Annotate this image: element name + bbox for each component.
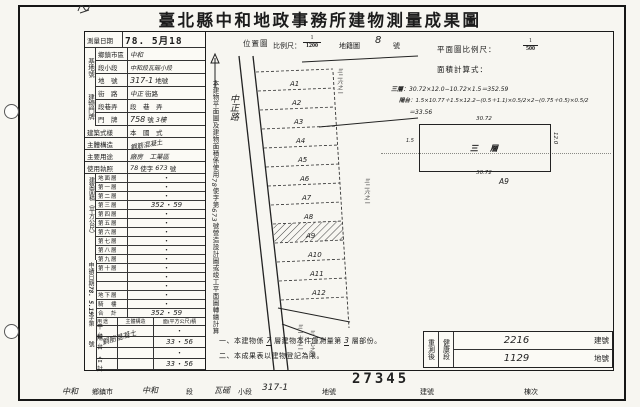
floor-area-value: ・: [128, 211, 205, 217]
floor-area-row: 合 計352・59: [96, 309, 205, 318]
parcel-label: A10: [307, 251, 322, 259]
floor-area-value: ・: [128, 283, 205, 289]
resurvey-building-row: 2216 建號: [454, 332, 612, 350]
floor-area-row: ・: [96, 282, 205, 291]
structure-row: 主體構造 鋼筋混凝土: [85, 138, 205, 150]
parcel-label: A7: [301, 194, 312, 202]
large-parcel-top: [302, 56, 418, 62]
plan-dim-bottom: 30.72: [419, 170, 549, 176]
footer-city-handwritten: 中和: [62, 386, 78, 397]
road-edge-left: [239, 56, 274, 370]
floor-area-row: 第七層・: [96, 237, 205, 246]
parcel-label: A11: [309, 270, 324, 278]
preprinted-decimal-dot: ・: [163, 265, 170, 271]
parcel-boundary-right: [333, 72, 349, 328]
annex-area: 33・56: [154, 337, 205, 347]
floor-area-value: ・: [128, 247, 205, 253]
annex-area-frac: 56: [184, 338, 193, 346]
floor-area-row: ・: [96, 273, 205, 282]
site-row-label: 段小段: [96, 61, 128, 73]
footer-lot-number-handwritten: 317-1: [262, 383, 288, 393]
floor-label: 第九層: [96, 255, 128, 263]
floor-area-row: 第四層・: [96, 210, 205, 219]
area-value-int: 352: [151, 309, 164, 317]
balcony-formula-line: 陽台：1.5×10.77＋1.5×12.2−(0.5＋1.1)×0.5/2×2−…: [399, 96, 589, 104]
preprinted-decimal-dot: ・: [163, 301, 170, 307]
usage-value: 廠房 工業區: [130, 151, 169, 161]
floor-area-row: 第八層・: [96, 246, 205, 255]
preprinted-decimal-dot: ・: [163, 229, 170, 235]
structure-value: 鋼筋混凝土: [129, 136, 163, 151]
preprinted-decimal-dot: ・: [163, 184, 170, 190]
resurvey-building-suffix: 建號: [579, 335, 612, 346]
door-row-value: 中正: [130, 88, 143, 98]
door-row: 段巷弄 段 巷 弄: [96, 100, 205, 113]
road-name-label: 中正路: [227, 94, 239, 121]
floor-area-row: 地下層・: [96, 291, 205, 300]
floor-label: 第五層: [96, 219, 128, 227]
survey-date-row: 測量日期 78. 5月18: [85, 32, 205, 48]
floor-area-row: 第二層・: [96, 192, 205, 201]
annex-area: ・: [154, 348, 205, 358]
annex-area-int: 33: [166, 360, 175, 368]
preprinted-decimal-dot: ・: [163, 220, 170, 226]
plan-dim-right: 12.0: [552, 132, 558, 144]
door-row-label: 段巷弄: [96, 100, 128, 112]
floor-label: 地下層: [96, 291, 128, 299]
note-number: 二、: [219, 352, 234, 360]
floor-area-row: 第一層・: [96, 183, 205, 192]
floor-label: 第四層: [96, 210, 128, 218]
floor-label: [96, 273, 128, 281]
preprinted-decimal-dot: ・: [163, 175, 170, 181]
site-row: 段小段 中和段瓦磘小段: [96, 61, 205, 74]
plan-scale-numerator: 1: [529, 38, 532, 45]
footer-lot-label: 地號: [322, 387, 336, 397]
floor-label: 第七層: [96, 237, 128, 245]
note-hand-year: 78: [210, 178, 218, 187]
area-value-int: 352: [151, 201, 164, 209]
site-row-value: 中和: [130, 49, 143, 59]
note-text: 本建物平面圖及建物面積係使用: [211, 80, 218, 178]
floor-area-value: ・: [128, 274, 205, 280]
floor-label: 騎 樓: [96, 300, 128, 308]
parcel-separators: [256, 69, 347, 300]
note-text: 本建物係: [234, 337, 264, 345]
usage-label: 主要用途: [85, 150, 128, 161]
parcel-number-annotation: 三二六之一: [361, 178, 370, 206]
license-word: 使字: [140, 163, 153, 173]
large-parcel-divider: [319, 118, 418, 127]
floor-area-section: 建築面積（平方公尺） 地面層・第一層・第二層・第三層352・59第四層・第五層・…: [85, 174, 205, 318]
site-row-value: 中和段瓦磘小段: [130, 63, 172, 72]
north-arrow-icon: [208, 52, 222, 90]
plan-scale-fraction: 1 500: [523, 38, 538, 53]
annex-structure: [118, 348, 154, 358]
floor-area-value: ・: [128, 256, 205, 262]
door-floor-value: 3樓: [156, 114, 167, 124]
note-text: 使字第: [211, 187, 218, 208]
style-row: 建築式樣 本 國 式: [85, 126, 205, 138]
parcel-label: A12: [311, 289, 326, 297]
south-boundary: [278, 308, 350, 322]
footer-section-handwritten: 中和: [142, 385, 158, 396]
style-value: 本 國 式: [128, 126, 205, 137]
resurvey-lot-number: 1129: [454, 353, 579, 364]
door-row-suffix: 段 巷 弄: [130, 101, 163, 111]
floor-area-row: 地面層・: [96, 174, 205, 183]
balcony-formula-label: 陽台: [399, 98, 410, 104]
door-row-suffix: 街路: [145, 88, 158, 98]
footer-city-label: 鄉鎮市: [92, 387, 113, 397]
note-total-floors: 7: [266, 336, 272, 346]
floor-formula-label: 三層: [391, 86, 403, 93]
preprinted-decimal-dot: ・: [163, 256, 170, 262]
application-date-strip: 申請日期78. 5.19字第號: [85, 260, 97, 370]
door-number-value: 758: [130, 115, 145, 124]
floor-area-value: 352・59: [128, 309, 205, 317]
resurvey-section-name: 健康段: [439, 332, 454, 367]
site-section: 基地號 鄉鎮市區 中和 段小段 中和段瓦磘小段 地 號 317-1地號: [85, 48, 205, 87]
parcel-label: A8: [303, 213, 314, 221]
floor-label: 第三層: [96, 201, 128, 209]
preprinted-decimal-dot: ・: [163, 292, 170, 298]
floor-plan-label: 三 層: [470, 143, 500, 154]
resurvey-box: 重測後 健康段 2216 建號 1129 地號: [423, 331, 613, 368]
parcel-label: A2: [291, 99, 302, 107]
annex-area-int: 33: [166, 338, 175, 346]
preprinted-decimal-dot: ・: [165, 202, 172, 208]
floor-label: 第一層: [96, 183, 128, 191]
application-number-label: 字第: [87, 315, 93, 327]
punch-hole-top: [4, 104, 19, 119]
floor-area-rows: 地面層・第一層・第二層・第三層352・59第四層・第五層・第六層・第七層・第八層…: [96, 174, 205, 318]
license-year: 78: [130, 164, 138, 172]
preprinted-decimal-dot: ・: [176, 328, 183, 334]
scanned-survey-document: 臺北縣中和地政事務所建物測量成果圖 測量日期 78. 5月18 基地號 鄉鎮市區…: [0, 0, 640, 407]
preprinted-decimal-dot: ・: [176, 350, 183, 356]
plan-dim-top: 30.72: [419, 116, 549, 122]
resurvey-label: 重測後: [424, 332, 439, 367]
site-section-label: 基地號: [85, 48, 96, 87]
license-row: 使用執照 78使字673號: [85, 162, 205, 174]
preprinted-decimal-dot: ・: [163, 274, 170, 280]
parcel-number-annotation: 三一七之一: [294, 324, 303, 352]
floor-formula: 30.72×12.0−10.72×1.5＝352.59: [409, 86, 508, 93]
page-title: 臺北縣中和地政事務所建物測量成果圖: [0, 7, 640, 31]
parcel-label: A9: [305, 232, 316, 240]
area-value-frac: 59: [173, 201, 182, 209]
site-row-value: 317-1: [130, 76, 153, 85]
punch-hole-bottom: [4, 324, 19, 339]
preprinted-decimal-dot: ・: [176, 361, 183, 367]
floor-label: 第八層: [96, 246, 128, 254]
area-value-frac: 59: [173, 309, 182, 317]
floor-formula-line: 三層：30.72×12.0−10.72×1.5＝352.59: [391, 84, 508, 93]
floor-label: 第六層: [96, 228, 128, 236]
floor-area-row: 第十層・: [96, 264, 205, 273]
handwritten-mark: [76, 0, 94, 15]
plan-parcel-ref: A9: [499, 177, 509, 186]
floor-label: 第二層: [96, 192, 128, 200]
license-number: 673: [155, 164, 167, 172]
location-map: A1A2A3A4A5A6A7A8A9A10A11A12: [222, 32, 422, 370]
floor-area-value: ・: [128, 175, 205, 181]
note-measured-floor: 3: [344, 336, 350, 346]
parcel-label: A3: [293, 118, 303, 126]
site-row: 地 號 317-1地號: [96, 74, 205, 87]
survey-form-box: 測量日期 78. 5月18 基地號 鄉鎮市區 中和 段小段 中和段瓦磘小段 地 …: [84, 31, 614, 371]
plan-dim-left: 1.5: [406, 138, 414, 144]
parcel-label: A6: [299, 175, 310, 183]
balcony-formula-result: ＝33.56: [409, 107, 432, 116]
footer-unit-label: 棟次: [524, 387, 538, 397]
preprinted-decimal-dot: ・: [176, 339, 183, 345]
application-number-suffix: 號: [87, 341, 93, 347]
license-label: 使用執照: [85, 162, 128, 173]
door-row-suffix: 號: [147, 114, 154, 124]
parcel-label: A4: [295, 137, 305, 145]
floor-area-value: ・: [128, 193, 205, 199]
survey-date-label: 測量日期: [85, 32, 123, 47]
survey-date-stamp: 78. 5月18: [123, 32, 205, 47]
floor-label: [96, 282, 128, 290]
annex-area-frac: 56: [184, 360, 193, 368]
parcel-number-annotation: 三一七之二: [306, 330, 315, 358]
floor-label: 第十層: [96, 264, 128, 272]
floor-area-value: ・: [128, 229, 205, 235]
site-row-label: 鄉鎮市區: [96, 48, 128, 60]
application-date-label: 申請日期: [87, 262, 93, 286]
note-hand-number: 673: [210, 208, 218, 222]
building-info-table: 測量日期 78. 5月18 基地號 鄉鎮市區 中和 段小段 中和段瓦磘小段 地 …: [85, 32, 206, 370]
parcel-label: A1: [289, 80, 299, 88]
plan-scale-denominator: 500: [523, 45, 538, 53]
footer-building-number-label: 建號: [420, 387, 434, 397]
footer-subsection-handwritten: 瓦磘: [214, 385, 230, 396]
preprinted-decimal-dot: ・: [163, 193, 170, 199]
floor-area-row: 第六層・: [96, 228, 205, 237]
door-section: 建物門牌 街 路 中正街路 段巷弄 段 巷 弄 門 牌 758號3樓: [85, 87, 205, 126]
note-text: 號營造設計圖或竣工平面圖轉繪計算: [211, 222, 218, 334]
balcony-formula: 1.5×10.77＋1.5×12.2−(0.5＋1.1)×0.5/2×2−(0.…: [416, 98, 589, 104]
annex-structure: [118, 359, 154, 369]
preprinted-decimal-dot: ・: [163, 283, 170, 289]
floor-area-value: ・: [128, 238, 205, 244]
preprinted-decimal-dot: ・: [163, 211, 170, 217]
door-row: 門 牌 758號3樓: [96, 113, 205, 126]
door-section-label: 建物門牌: [85, 87, 96, 126]
footer-subsection-label: 小段: [238, 387, 252, 397]
resurvey-building-number: 2216: [454, 335, 579, 346]
door-row-label: 門 牌: [96, 113, 128, 125]
application-date-stamp: 78. 5.19: [87, 286, 94, 315]
note-number: 一、: [219, 337, 234, 345]
floor-area-value: 352・59: [128, 201, 205, 209]
resurvey-lot-row: 1129 地號: [454, 350, 612, 367]
plan-scale-label: 平面圖比例尺：: [437, 44, 497, 55]
floor-label: 合 計: [96, 309, 128, 317]
preprinted-decimal-dot: ・: [163, 238, 170, 244]
site-row-label: 地 號: [96, 74, 128, 86]
style-label: 建築式樣: [85, 126, 128, 137]
site-row: 鄉鎮市區 中和: [96, 48, 205, 61]
site-row-suffix: 地號: [155, 75, 168, 85]
structure-label: 主體構造: [85, 138, 128, 149]
door-row: 街 路 中正街路: [96, 87, 205, 100]
floor-area-row: 第五層・: [96, 219, 205, 228]
floor-area-value: ・: [128, 292, 205, 298]
note-text: 層部份。: [352, 337, 382, 345]
parcel-label: A5: [297, 156, 308, 164]
usage-row: 主要用途 廠房 工業區: [85, 150, 205, 162]
source-drawing-note: 本建物平面圖及建物面積係使用78使字第673號營造設計圖或竣工平面圖轉繪計算: [207, 80, 222, 370]
parcel-number-annotation: 三二六之一: [334, 68, 343, 96]
footer-section-label: 段: [186, 387, 193, 397]
area-formula-label: 面積計算式：: [437, 64, 488, 75]
floor-area-value: ・: [128, 301, 205, 307]
floor-area-row: 騎 樓・: [96, 300, 205, 309]
preprinted-decimal-dot: ・: [163, 247, 170, 253]
annex-area: 33・56: [154, 359, 205, 369]
resurvey-lot-suffix: 地號: [579, 353, 612, 364]
preprinted-decimal-dot: ・: [165, 310, 172, 316]
floor-plan-rectangle: 三 層: [419, 124, 551, 172]
door-row-label: 街 路: [96, 87, 128, 99]
floor-label: 地面層: [96, 174, 128, 182]
floor-area-value: ・: [128, 265, 205, 271]
license-suffix: 號: [170, 163, 177, 173]
annex-usage: 合 計: [96, 359, 118, 369]
serial-number-stamp: 27345: [352, 371, 409, 387]
floor-area-row: 第三層352・59: [96, 201, 205, 210]
road-edge-right: [253, 56, 288, 370]
floor-area-value: ・: [128, 220, 205, 226]
floor-area-value: ・: [128, 184, 205, 190]
floor-area-row: 第九層・: [96, 255, 205, 264]
annex-row: 合 計33・56: [85, 359, 205, 370]
